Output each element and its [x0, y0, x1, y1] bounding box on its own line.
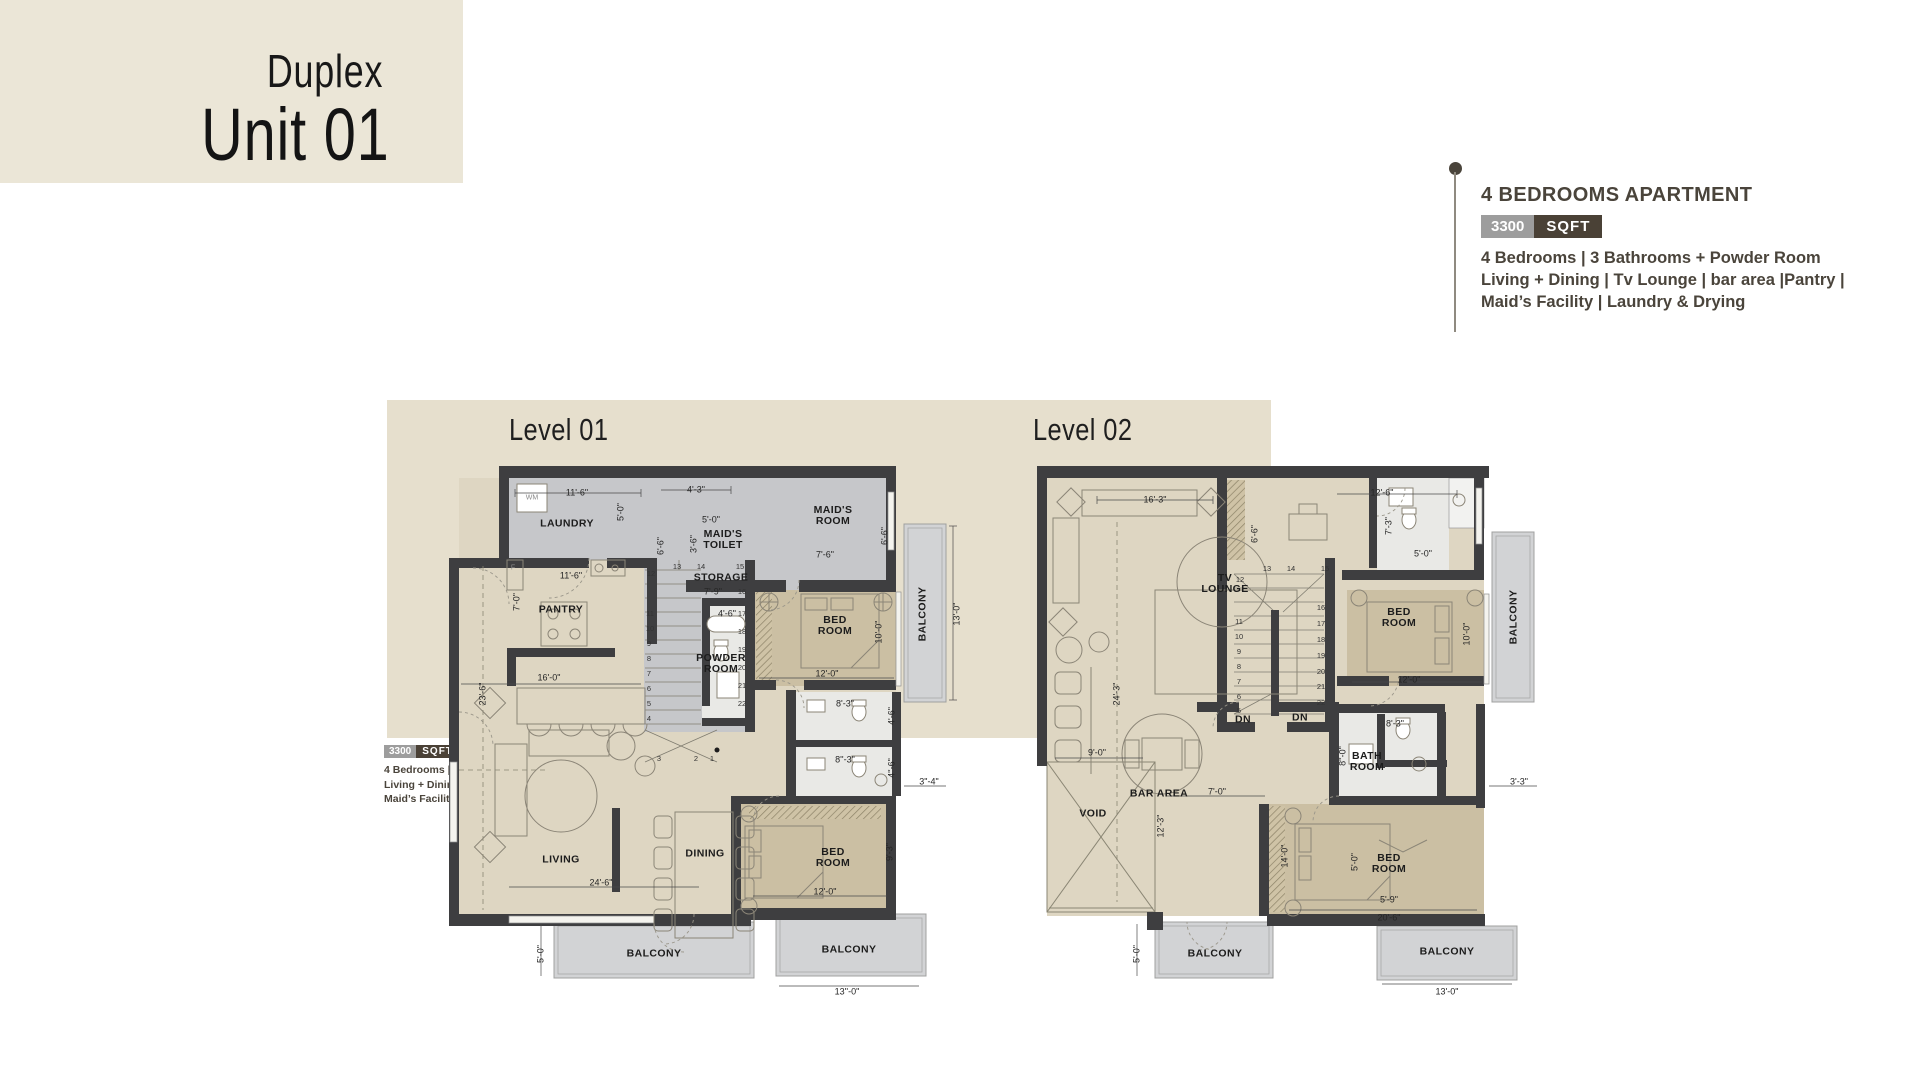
- dimension-label: 3"-4": [919, 777, 938, 786]
- dimension-label: 5'-0": [536, 945, 545, 963]
- dimension-label: 4'-6": [887, 707, 896, 725]
- stair-number: 20: [1317, 668, 1325, 676]
- dimension-label: 4'-6": [718, 609, 736, 618]
- dimension-label: 12'-6": [1371, 488, 1394, 497]
- dimension-label: 11'-6": [560, 571, 582, 580]
- feature-line-1-clipped: 4 Bedrooms | 3 Bathrooms + Powder Room: [384, 763, 452, 778]
- dimension-label: F: [511, 564, 515, 571]
- dimension-label: 8'-3": [836, 699, 854, 708]
- dimension-label: 12'-0": [816, 669, 839, 678]
- dimension-label: 7'-9": [704, 587, 722, 596]
- stair-number: 9: [1237, 648, 1241, 656]
- dimension-label: 11'-6": [566, 488, 588, 497]
- level-02-floorplan: 16'-3"TV LOUNGE24'-3"6'-6"12'-6"7'-3"5'-…: [1037, 462, 1557, 1018]
- area-value: 3300: [1481, 215, 1534, 238]
- apartment-info: 4 BEDROOMS APARTMENT 3300 SQFT 4 Bedroom…: [1481, 184, 1901, 313]
- dimension-label: 4''-6": [887, 758, 896, 778]
- stair-number: 18: [1317, 636, 1325, 644]
- feature-line-1: 4 Bedrooms | 3 Bathrooms + Powder Room: [1481, 247, 1901, 269]
- callout-line: [1454, 172, 1456, 332]
- level-01-title: Level 01: [509, 412, 608, 448]
- room-label: BED ROOM: [816, 847, 850, 869]
- apartment-features: 4 Bedrooms | 3 Bathrooms + Powder Room L…: [1481, 247, 1901, 313]
- stair-number: 7: [1237, 678, 1241, 686]
- dimension-label: 5'-0": [616, 503, 625, 521]
- apartment-heading: 4 BEDROOMS APARTMENT: [1481, 184, 1901, 207]
- stair-number: 4: [647, 715, 651, 723]
- room-label: MAID'S TOILET: [703, 529, 743, 551]
- unit-type-title: Duplex: [267, 44, 383, 98]
- stair-number: 16: [738, 588, 746, 596]
- stair-number: 18: [738, 628, 746, 636]
- room-label: DINING: [685, 848, 724, 859]
- room-label: LIVING: [542, 854, 579, 865]
- dimension-label: 5'-0": [1350, 853, 1359, 871]
- dimension-label: 10'-0": [874, 621, 883, 644]
- dimension-label: 12'-3": [1156, 815, 1165, 838]
- level-01-floorplan: LAUNDRYWM11'-6"5'-0"4'-3"6'-6"5'-0"3'-6"…: [449, 462, 969, 1018]
- room-label: MAID'S ROOM: [814, 505, 853, 527]
- dimension-label: 23'-6": [478, 683, 487, 706]
- dimension-label: 5'-9": [1380, 895, 1398, 904]
- room-label: LAUNDRY: [540, 518, 594, 529]
- room-label: BALCONY: [917, 587, 928, 642]
- stair-number: 14: [1287, 565, 1295, 573]
- stair-number: 6: [1237, 693, 1241, 701]
- dimension-label: 16'-3": [1144, 495, 1167, 504]
- area-unit: SQFT: [1534, 215, 1602, 238]
- stair-number: 15: [736, 563, 744, 571]
- stair-number: 5: [647, 700, 651, 708]
- dimension-label: 12'-0": [814, 887, 837, 896]
- stair-number: 20: [738, 664, 746, 672]
- apartment-info-clipped: 3300 SQFT 4 Bedrooms | 3 Bathrooms + Pow…: [384, 741, 452, 807]
- dimension-label: 5'-0": [702, 515, 720, 524]
- stair-number: 10: [1235, 633, 1243, 641]
- room-label: STORAGE: [694, 572, 749, 583]
- unit-number-title: Unit 01: [201, 92, 389, 177]
- stair-number: 12: [1236, 576, 1244, 584]
- room-label: DN: [1235, 714, 1251, 725]
- stair-number: 13: [1263, 565, 1271, 573]
- room-label: BALCONY: [1188, 948, 1243, 959]
- room-label: BALCONY: [822, 944, 877, 955]
- stair-number: 3: [657, 755, 661, 763]
- stair-number: 11: [1235, 618, 1243, 626]
- room-label: BED ROOM: [1372, 853, 1406, 875]
- room-label: BED ROOM: [818, 615, 852, 637]
- room-label: BAR AREA: [1130, 788, 1188, 799]
- stair-number: 22: [738, 700, 746, 708]
- feature-line-3: Maid’s Facility | Laundry & Drying: [1481, 291, 1901, 313]
- area-unit-clipped: SQFT: [416, 745, 452, 758]
- stair-number: 16: [1317, 604, 1325, 612]
- stair-number: 19: [1317, 652, 1325, 660]
- dimension-label: 5'-0": [1414, 549, 1432, 558]
- dimension-label: 20'-6": [1378, 913, 1401, 922]
- room-label: BATH ROOM: [1350, 751, 1384, 773]
- area-badge-clipped: 3300 SQFT: [384, 745, 452, 758]
- stair-number: 12: [647, 570, 655, 578]
- dimension-label: 24'-3": [1112, 683, 1121, 706]
- room-label: BALCONY: [1420, 946, 1475, 957]
- dimension-label: 10'-0": [1462, 623, 1471, 646]
- dimension-label: 16'-0": [538, 673, 561, 682]
- feature-line-2: Living + Dining | Tv Lounge | bar area |…: [1481, 269, 1901, 291]
- room-label: PANTRY: [539, 604, 583, 615]
- room-label: DN: [1292, 712, 1308, 723]
- dimension-label: 8''-0": [1338, 746, 1347, 766]
- stair-number: 17: [1317, 620, 1325, 628]
- stair-number: 11: [646, 610, 654, 618]
- dimension-label: 12'-0": [1398, 675, 1421, 684]
- stair-number: 2: [694, 755, 698, 763]
- room-label: VOID: [1079, 808, 1106, 819]
- dimension-label: 5'-0": [1132, 945, 1141, 963]
- stair-number: 21: [1317, 683, 1325, 691]
- dimension-label: 13'-0": [1436, 987, 1459, 996]
- stair-number: 6: [647, 685, 651, 693]
- dimension-label: 4'-3": [687, 485, 705, 494]
- dimension-label: 8''-3": [835, 755, 855, 764]
- area-badge: 3300 SQFT: [1481, 215, 1602, 238]
- dimension-label: 3'-6": [689, 535, 698, 553]
- stair-number: 22: [1317, 699, 1325, 707]
- room-label: BED ROOM: [1382, 607, 1416, 629]
- stair-number: 14: [697, 563, 705, 571]
- dimension-label: 6'-6": [880, 527, 889, 545]
- level-02-floorplan-drawing: [1037, 462, 1557, 1018]
- dimension-label: 3'-3": [1510, 777, 1528, 786]
- stair-number: 5: [1237, 707, 1241, 715]
- area-value-clipped: 3300: [384, 745, 416, 758]
- feature-line-2-clipped: Living + Dining | Tv Lounge | bar area |…: [384, 778, 452, 793]
- header-panel: Duplex Unit 01: [0, 0, 463, 183]
- dimension-label: 9'-0": [1088, 748, 1106, 757]
- page: Duplex Unit 01 4 BEDROOMS APARTMENT 3300…: [0, 0, 1920, 1080]
- dimension-label: 13'-0": [952, 603, 961, 626]
- stair-number: 1: [710, 755, 714, 763]
- feature-line-3-clipped: Maid’s Facility | Laundry & Drying: [384, 792, 452, 807]
- stair-number: 13: [673, 563, 681, 571]
- dimension-label: 14'-0": [1280, 845, 1289, 868]
- level-02-title: Level 02: [1033, 412, 1132, 448]
- stair-number: 8: [1237, 663, 1241, 671]
- dimension-label: 7'-6": [816, 550, 834, 559]
- dimension-label: 8'-3": [1386, 719, 1404, 728]
- stair-number: 10: [646, 625, 654, 633]
- dimension-label: WM: [526, 494, 538, 501]
- room-label: BALCONY: [627, 948, 682, 959]
- room-label: BALCONY: [1508, 590, 1519, 645]
- stair-number: 7: [647, 670, 651, 678]
- dimension-label: 6'-6": [656, 537, 665, 555]
- stair-number: 19: [738, 646, 746, 654]
- stair-number: 17: [738, 610, 746, 618]
- dimension-label: 7'-0": [1208, 787, 1226, 796]
- dimension-label: 13''-0": [835, 987, 860, 996]
- stair-number: 21: [738, 682, 746, 690]
- dimension-label: 9'-3": [885, 843, 894, 861]
- dimension-label: 7'-3": [1384, 517, 1393, 535]
- stair-number: 8: [647, 655, 651, 663]
- dimension-label: 6'-6": [1250, 525, 1259, 543]
- stair-number: 15: [1321, 565, 1329, 573]
- dimension-label: 7'-0": [512, 593, 521, 611]
- apartment-features-clipped: 4 Bedrooms | 3 Bathrooms + Powder Room L…: [384, 763, 452, 807]
- stair-number: 9: [647, 640, 651, 648]
- dimension-label: 24'-6": [590, 878, 613, 887]
